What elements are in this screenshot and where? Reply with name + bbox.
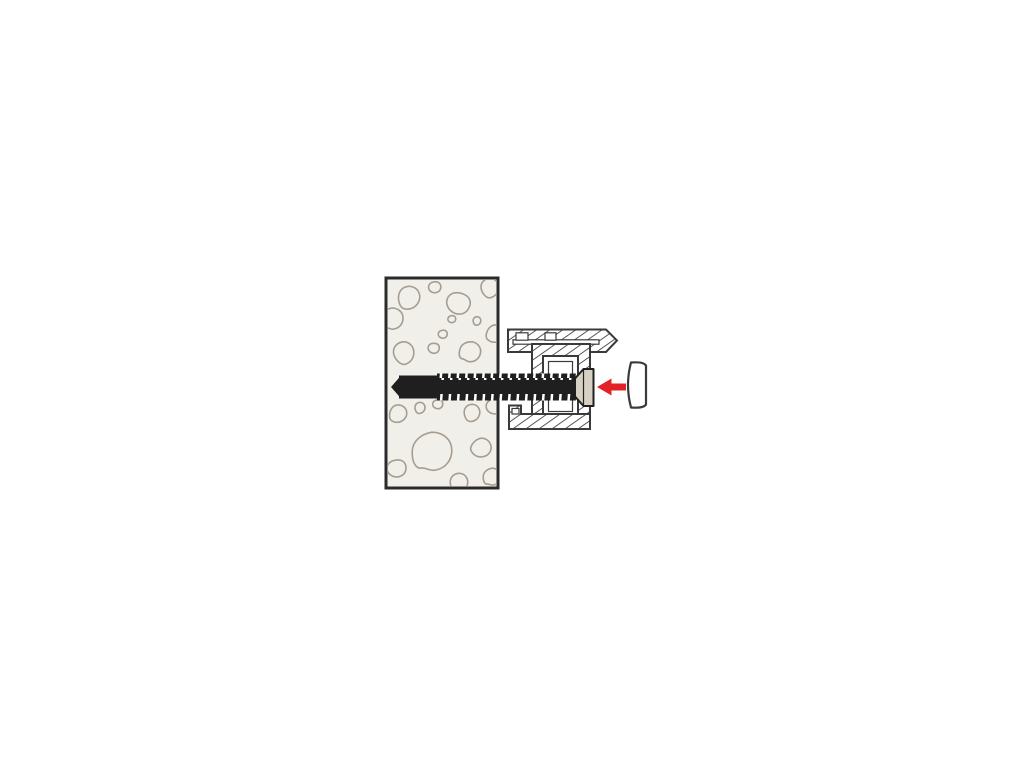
screw-countersunk-head [575,369,594,406]
profile-notch [545,333,556,340]
diagram-canvas [0,0,1024,768]
profile-notch [512,409,519,415]
screw-shank [399,376,439,399]
installation-diagram [0,0,1024,768]
left-arrow-icon [597,379,626,396]
screw-core [437,380,576,394]
profile-notch [516,333,528,340]
cover-cap [628,362,646,407]
